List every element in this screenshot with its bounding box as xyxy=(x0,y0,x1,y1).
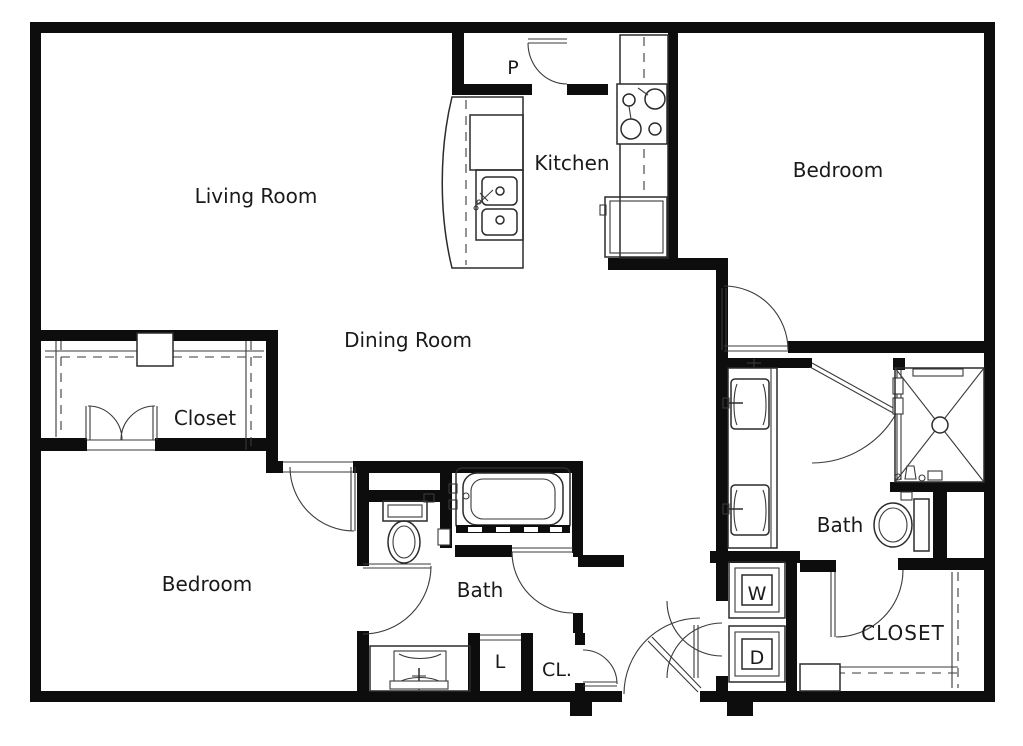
bath-bedroom-door xyxy=(363,564,431,634)
entry-door xyxy=(624,618,701,694)
floor-plan-drawing: Living Room Kitchen Bedroom Dining Room … xyxy=(0,0,1023,746)
kitchen-counter-right xyxy=(620,35,668,258)
label-living-room: Living Room xyxy=(195,184,318,208)
label-dryer: D xyxy=(750,647,765,669)
bath-right-door xyxy=(810,363,897,463)
closet-left-shelving xyxy=(45,333,264,450)
label-kitchen: Kitchen xyxy=(534,151,609,175)
refrigerator xyxy=(600,197,667,257)
label-dining-room: Dining Room xyxy=(344,328,472,352)
linen-door-lines xyxy=(480,635,521,640)
label-bedroom-top: Bedroom xyxy=(793,158,883,182)
bedroom-top-door xyxy=(722,286,788,351)
label-linen: L xyxy=(495,651,506,673)
toilet-bottom xyxy=(383,494,450,563)
vanity-bottom xyxy=(370,646,470,691)
walls xyxy=(30,22,995,716)
label-washer: W xyxy=(748,583,767,605)
closet-left-double-doors xyxy=(86,406,157,450)
label-closet-left: Closet xyxy=(174,406,236,430)
label-closet-right: CLOSET xyxy=(861,621,945,645)
vanity-right xyxy=(723,359,777,548)
stove xyxy=(617,84,667,144)
bedroom-bottom-door xyxy=(283,462,355,531)
label-bath-bottom: Bath xyxy=(457,578,504,602)
toilet-right xyxy=(874,492,929,551)
label-bedroom-bottom: Bedroom xyxy=(162,572,252,596)
label-closet-small: CL. xyxy=(542,659,572,681)
pantry-door xyxy=(528,39,567,84)
floor-plan: Living Room Kitchen Bedroom Dining Room … xyxy=(0,0,1023,746)
washer-dryer-doors xyxy=(667,601,722,678)
closet-small-door xyxy=(583,650,617,686)
shower xyxy=(895,368,984,482)
kitchen-sink xyxy=(474,170,523,240)
bathtub xyxy=(449,468,570,533)
label-pantry: P xyxy=(507,57,518,79)
bath-hall-door xyxy=(512,548,573,613)
label-bath-right: Bath xyxy=(817,513,864,537)
